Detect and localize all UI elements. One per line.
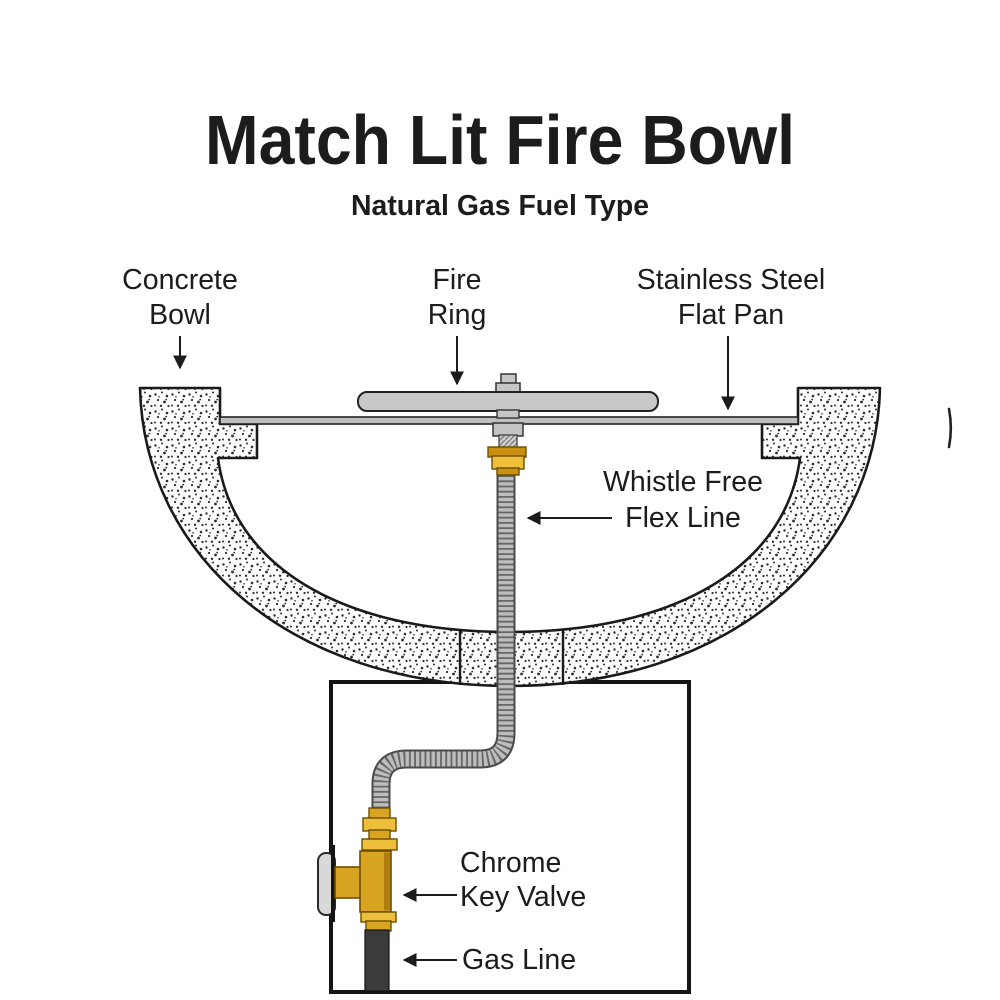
label-fire-ring: Fire Ring [428,264,487,384]
fire-bowl-diagram-page: { "title": "Match Lit Fire Bowl", "subti… [0,0,1000,1000]
label-fire-ring-line2: Ring [428,299,487,331]
label-flat-pan-line1: Stainless Steel [637,264,826,296]
label-concrete-bowl-line1: Concrete [122,264,238,296]
brass-pan-fitting [488,447,526,475]
label-concrete-bowl: Concrete Bowl [122,264,238,368]
page-subtitle: Natural Gas Fuel Type [351,190,649,222]
label-concrete-bowl-line2: Bowl [149,299,211,331]
valve-arm [335,867,363,898]
label-fire-ring-line1: Fire [432,264,481,296]
diagram-canvas: Match Lit Fire Bowl Natural Gas Fuel Typ… [0,0,1000,1000]
burner-stem [497,410,519,418]
label-key-valve-line1: Chrome [460,847,561,879]
label-flat-pan-line2: Flat Pan [678,299,784,331]
label-key-valve-line2: Key Valve [460,881,586,913]
label-flex-line-line1: Whistle Free [603,466,763,498]
gas-line-pipe [365,930,389,991]
valve-body-shade [384,853,390,911]
pan-lock-nut [493,423,523,436]
fire-ring [358,392,658,411]
page-title: Match Lit Fire Bowl [205,101,795,179]
label-flex-line: Whistle Free Flex Line [528,466,763,534]
label-flex-line-line2: Flex Line [625,502,741,534]
valve-outlet-nut [361,912,396,931]
label-gas-line-line1: Gas Line [462,944,576,976]
stray-mark [949,409,951,447]
